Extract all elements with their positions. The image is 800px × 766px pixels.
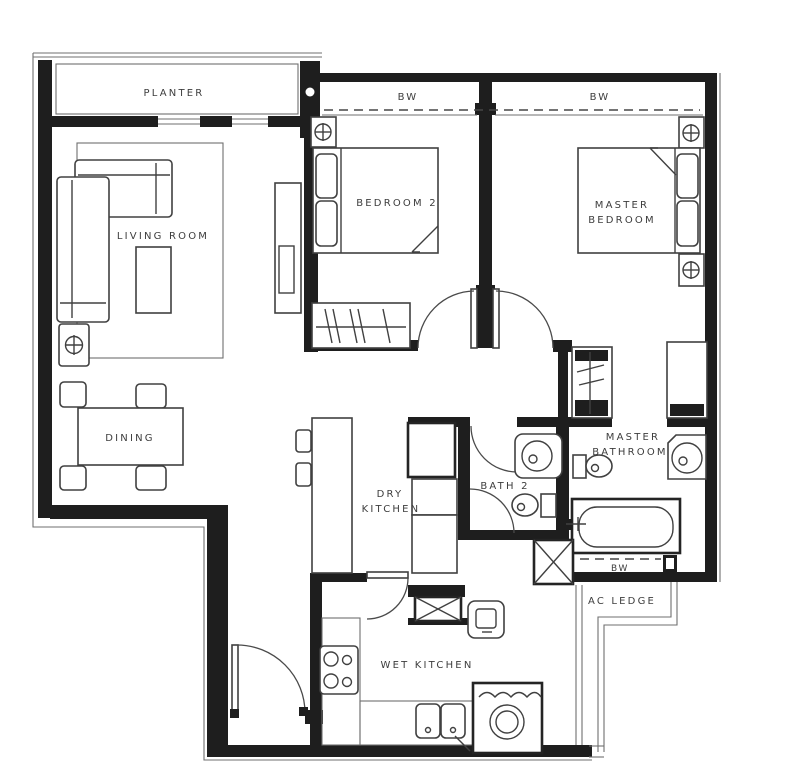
service-shaft [534,540,573,584]
wet-kitchen-label: WET KITCHEN [380,660,473,671]
wash-basin [668,435,706,479]
planter-box: PLANTER [56,64,315,114]
door-leaf [493,289,499,348]
planter-label: PLANTER [144,88,205,99]
living-room-label: LIVING ROOM [117,231,209,242]
dry-kitchen-label-1: DRY [377,489,404,500]
refrigerator-shaft [415,597,461,621]
door-swing [418,291,474,348]
closet [667,342,707,418]
bedside-table [311,117,336,147]
toilet [512,494,556,517]
door-swing [496,291,553,348]
walk-in-wardrobe [572,342,707,418]
dining-area: DINING [60,382,183,490]
living-room: LIVING ROOM [57,143,301,366]
ac-ledge-outline: AC LEDGE [588,582,677,757]
coffee-table [136,247,171,313]
wardrobe-hangers [312,303,410,348]
ac-ledge-label: AC LEDGE [588,596,656,607]
bedroom2-label: BEDROOM 2 [356,198,438,209]
door-swing [471,426,517,472]
dining-chair [136,466,166,490]
bar-stool [296,430,311,452]
door-swing [367,578,408,619]
door-leaf [471,289,477,348]
bedside-table [679,117,704,148]
floor-plan-canvas: PLANTER BW BW LIVING ROOM [0,0,800,766]
entry-door [230,645,308,718]
door-leaf [367,572,408,578]
dining-chair [60,466,86,490]
master-bathroom-label-1: MASTER [606,432,660,443]
bar-stool [296,463,311,486]
dry-kitchen-label-2: KITCHEN [362,504,421,515]
master-bathroom-label-2: BATHROOM [592,447,667,458]
bathtub [564,499,680,553]
pillow [316,154,337,198]
tv-console [275,183,301,313]
master-bedroom: MASTER BEDROOM [578,117,704,286]
door-leaf [232,645,238,713]
master-bedroom-label-2: BEDROOM [588,215,656,226]
dining-chair [60,382,86,407]
bay-window-label-bath: BW [611,564,629,574]
toilet [573,455,612,478]
washing-machine [473,683,542,753]
bay-window-label-master: BW [590,92,611,103]
master-bathroom: MASTER BATHROOM BW [564,432,706,574]
lamp-side-table [59,324,89,366]
shower-door-swing [470,489,514,533]
bath2-label: BATH 2 [480,481,529,492]
double-sink [416,704,470,751]
counter-appliance [468,601,504,638]
pillow [677,201,698,246]
island-counter [312,418,352,573]
bay-window-bath: BW [565,555,677,574]
pillow [316,201,337,246]
wash-basin [515,434,562,478]
kitchen-cabinets [408,423,457,573]
bedside-table [679,254,704,286]
pillow [677,154,698,198]
stove-hob [320,646,358,694]
bedroom2: BEDROOM 2 [311,117,438,348]
dining-chair [136,384,166,408]
door-swing [237,645,305,713]
bay-window-band: BW BW [322,92,703,115]
dining-label: DINING [105,433,155,444]
bath2: BATH 2 [470,426,562,533]
bay-window-label-bedroom2: BW [398,92,419,103]
master-bedroom-label-1: MASTER [595,200,649,211]
